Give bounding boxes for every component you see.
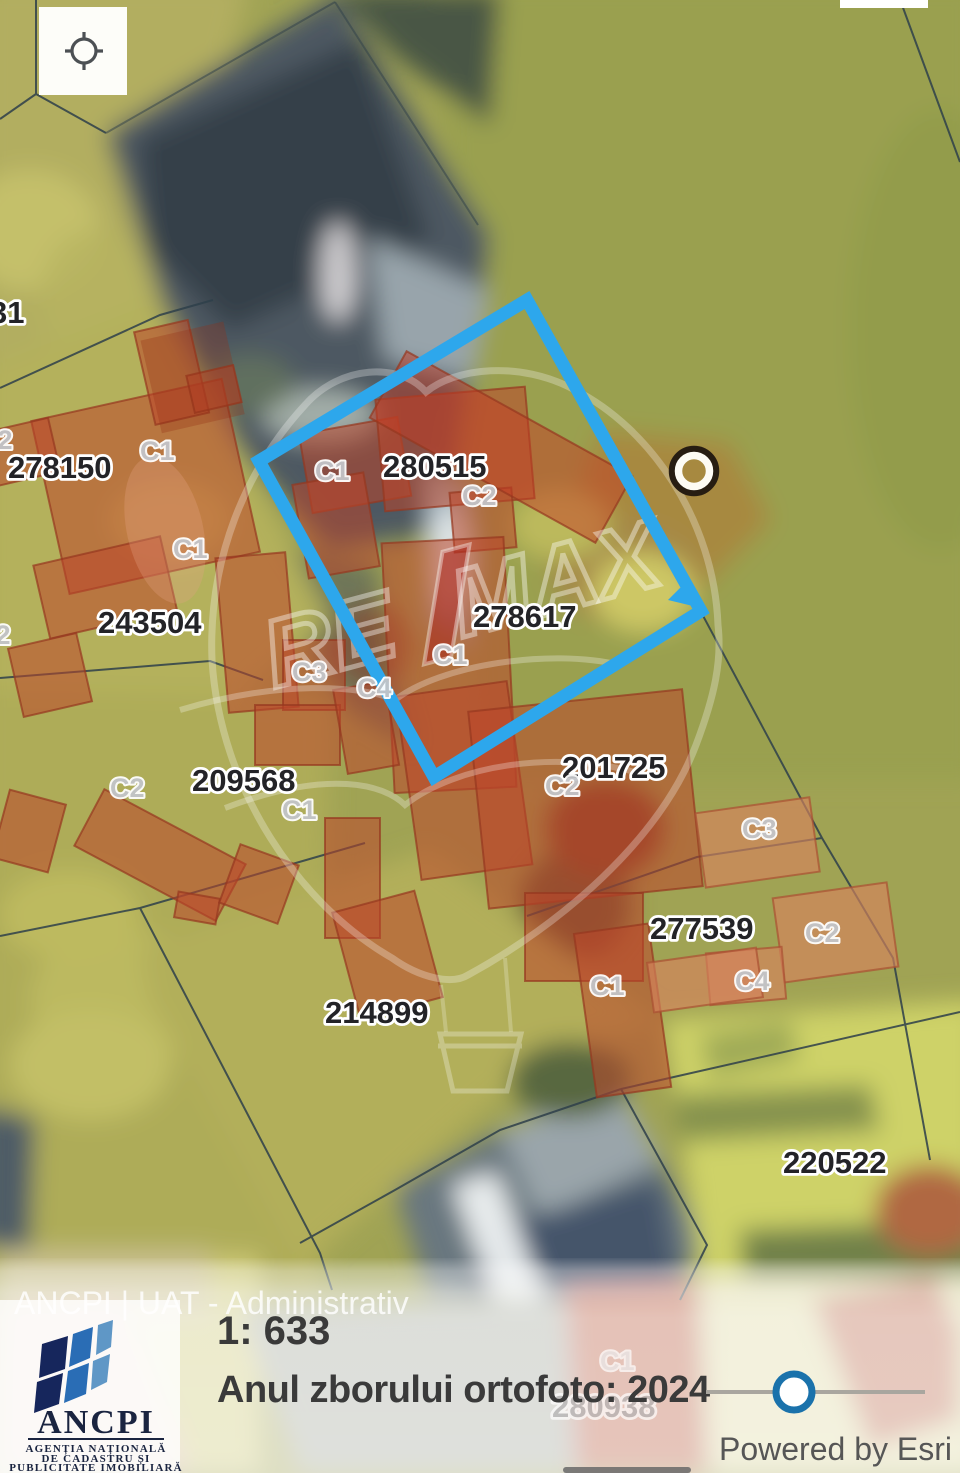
svg-text:C2: C2 [545, 771, 580, 801]
svg-text:ANCPI | UAT - Administrativ: ANCPI | UAT - Administrativ [14, 1285, 409, 1321]
svg-text:C3: C3 [292, 657, 327, 687]
svg-text:31: 31 [0, 295, 24, 330]
svg-text:C1: C1 [173, 534, 208, 564]
svg-text:1: 633: 1: 633 [217, 1309, 330, 1353]
svg-text:243504: 243504 [98, 605, 202, 640]
svg-text:214899: 214899 [325, 995, 428, 1030]
svg-text:277539: 277539 [650, 911, 753, 946]
svg-text:Powered by Esri: Powered by Esri [719, 1431, 952, 1467]
svg-text:C2: C2 [0, 620, 11, 650]
svg-text:280515: 280515 [383, 449, 486, 484]
svg-text:220522: 220522 [783, 1145, 886, 1180]
svg-text:C1: C1 [282, 795, 317, 825]
svg-text:Anul zborului ortofoto: 2024: Anul zborului ortofoto: 2024 [217, 1369, 710, 1411]
svg-text:278617: 278617 [473, 599, 576, 634]
svg-text:C3: C3 [742, 814, 777, 844]
svg-text:C1: C1 [433, 640, 468, 670]
svg-text:PUBLICITATE IMOBILIARĂ: PUBLICITATE IMOBILIARĂ [9, 1462, 183, 1473]
svg-text:C1: C1 [140, 436, 175, 466]
svg-text:C2: C2 [0, 425, 13, 455]
svg-text:209568: 209568 [192, 763, 295, 798]
svg-text:C2: C2 [462, 481, 497, 511]
svg-text:C1: C1 [315, 456, 350, 486]
svg-text:C2: C2 [110, 773, 145, 803]
svg-text:C4: C4 [735, 966, 770, 996]
svg-text:C2: C2 [805, 918, 840, 948]
svg-text:C4: C4 [357, 673, 392, 703]
svg-text:ANCPI: ANCPI [37, 1404, 155, 1441]
svg-text:C1: C1 [590, 971, 625, 1001]
svg-text:278150: 278150 [8, 450, 111, 485]
